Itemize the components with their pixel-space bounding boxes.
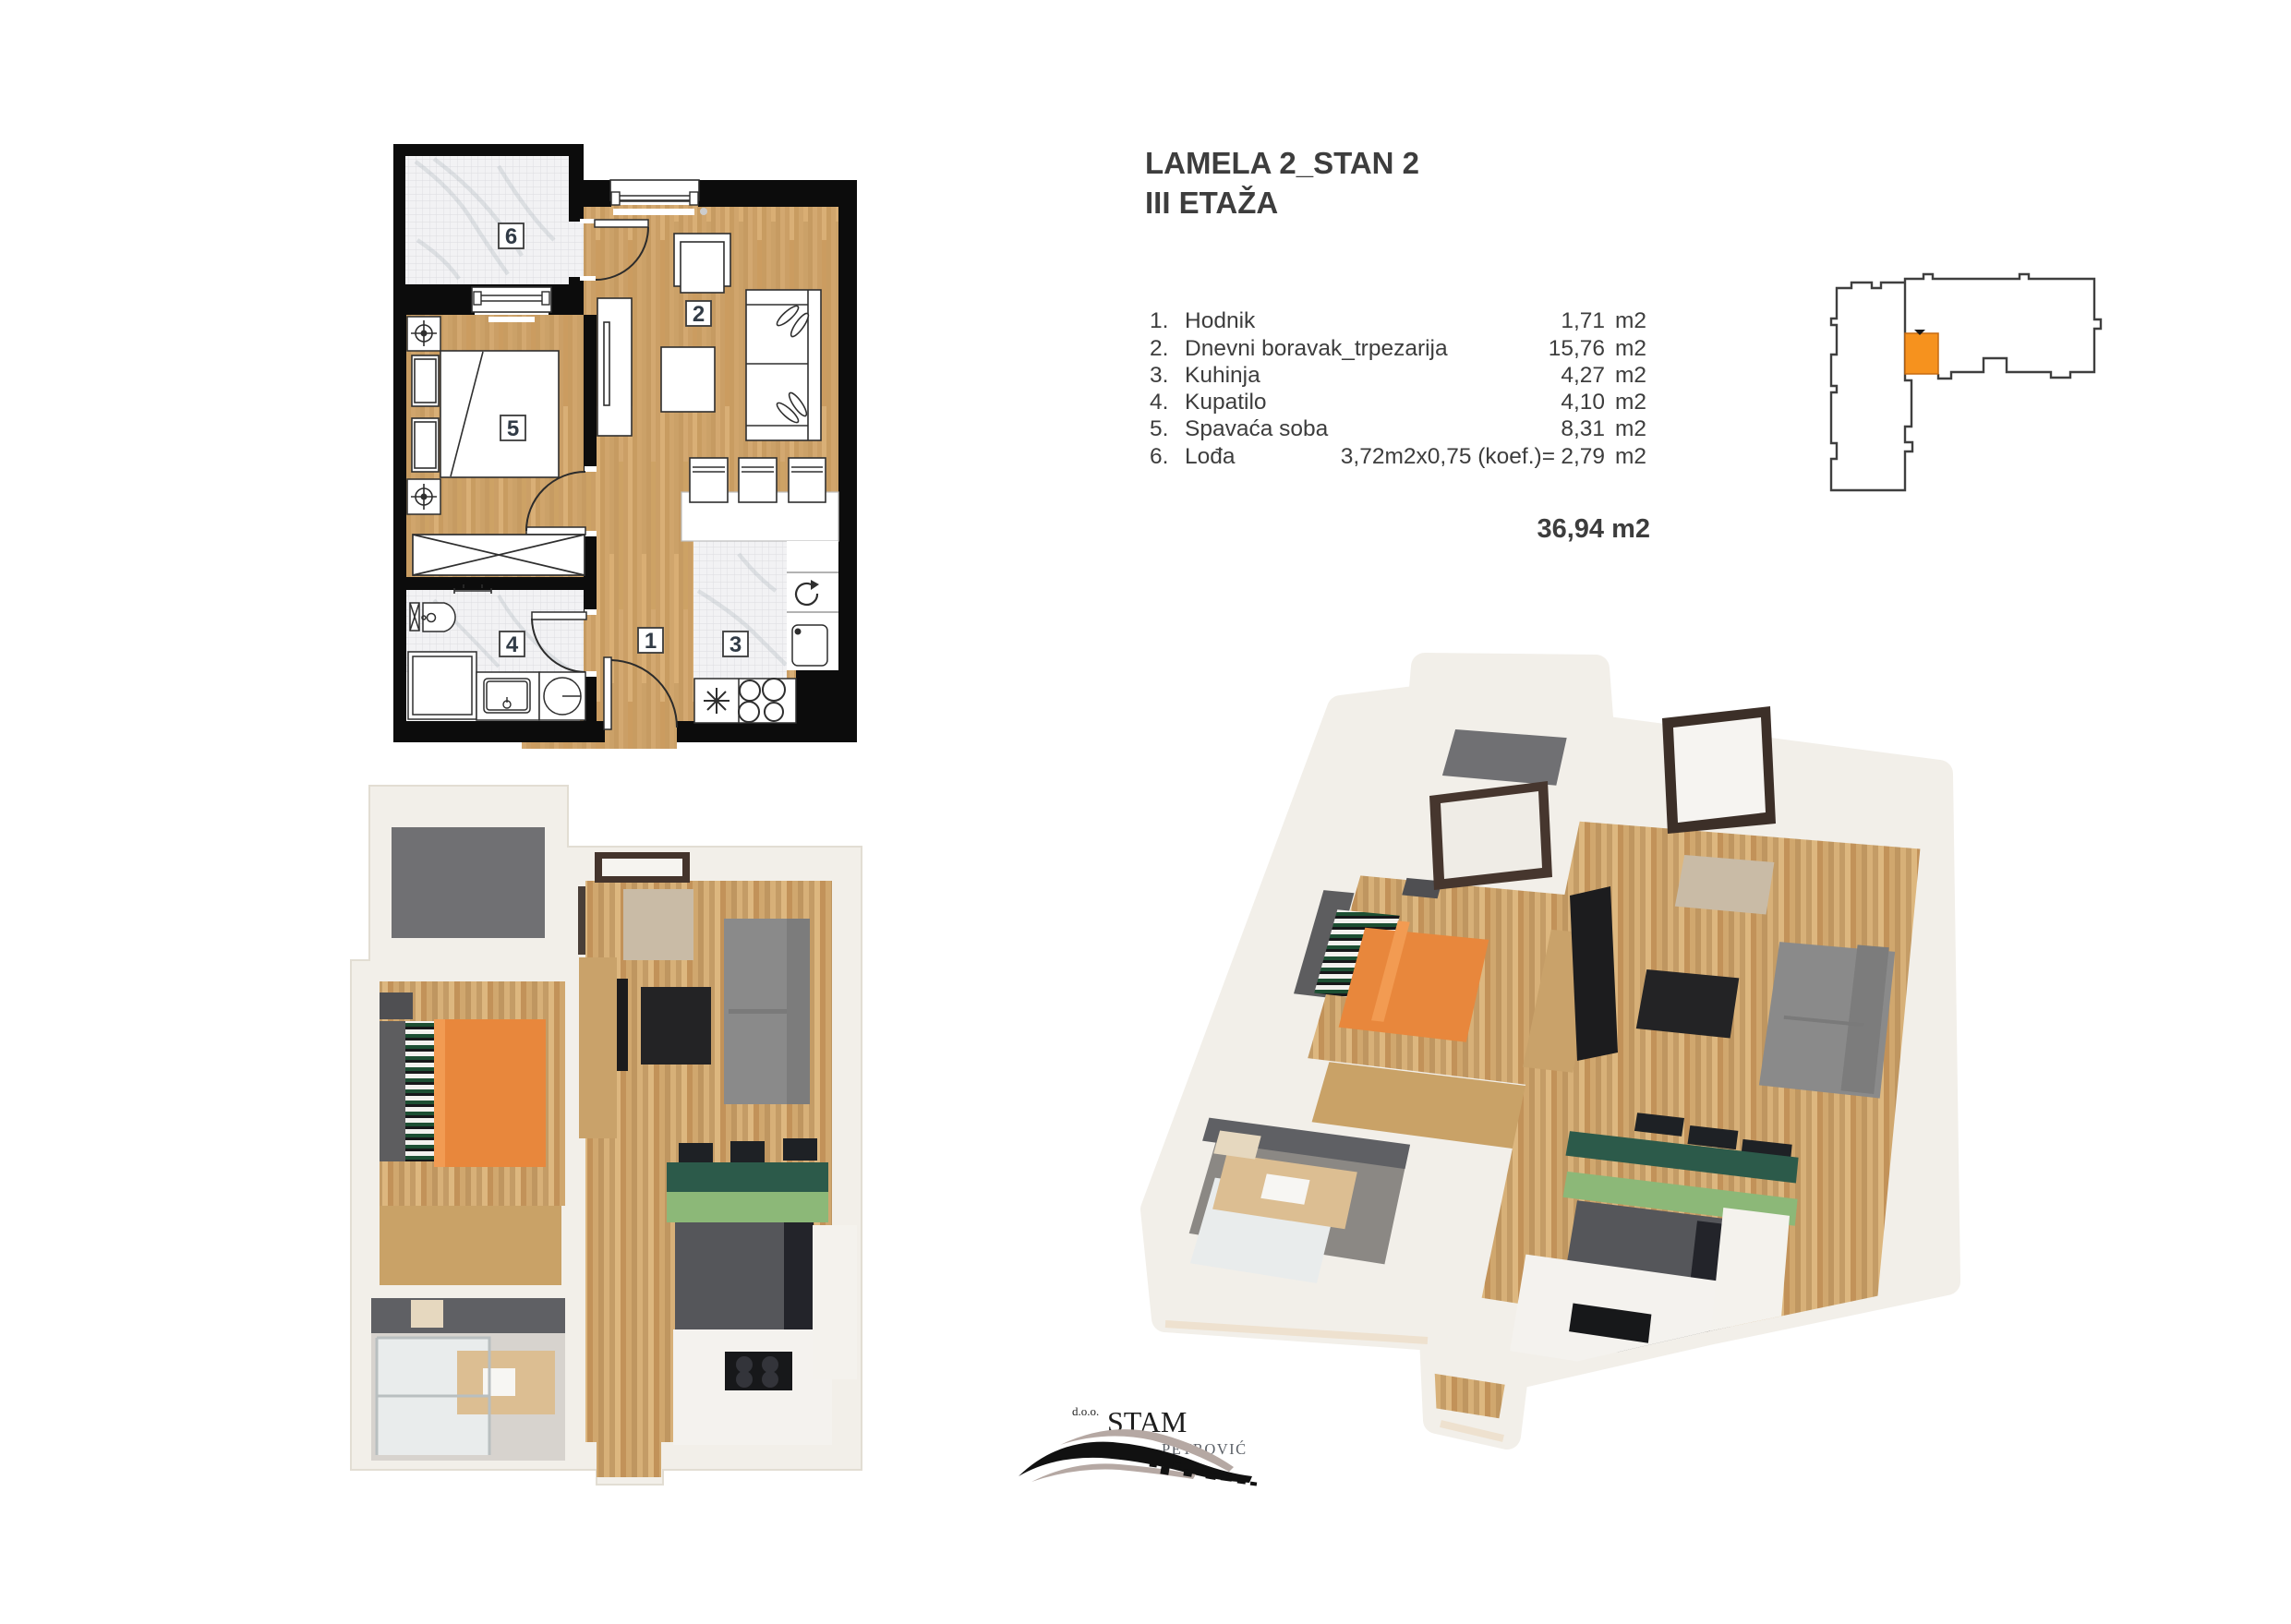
svg-text:d.o.o.: d.o.o. [1072, 1404, 1099, 1418]
svg-text:4: 4 [506, 632, 519, 657]
svg-text:5.: 5. [1150, 416, 1168, 441]
svg-text:2.: 2. [1150, 336, 1168, 361]
svg-text:Spavaća soba: Spavaća soba [1185, 416, 1329, 441]
svg-text:Lođa: Lođa [1185, 444, 1236, 469]
svg-text:4,27: 4,27 [1561, 363, 1605, 388]
svg-text:1.: 1. [1150, 308, 1168, 333]
svg-text:6.: 6. [1150, 444, 1168, 469]
svg-text:Dnevni boravak_trpezarija: Dnevni boravak_trpezarija [1185, 336, 1448, 361]
svg-text:Kupatilo: Kupatilo [1185, 390, 1267, 415]
svg-text:6: 6 [505, 224, 517, 249]
svg-text:4.: 4. [1150, 390, 1168, 415]
svg-text:1,71: 1,71 [1561, 308, 1605, 333]
svg-text:m2: m2 [1615, 390, 1646, 415]
svg-text:m2: m2 [1615, 416, 1646, 441]
svg-text:3: 3 [730, 632, 742, 657]
svg-text:1: 1 [645, 629, 657, 654]
svg-text:2,79: 2,79 [1561, 444, 1605, 469]
svg-text:III ETAŽA: III ETAŽA [1145, 186, 1278, 220]
svg-text:36,94 m2: 36,94 m2 [1537, 514, 1650, 544]
svg-text:Hodnik: Hodnik [1185, 308, 1256, 333]
svg-text:3.: 3. [1150, 363, 1168, 388]
svg-text:m2: m2 [1615, 363, 1646, 388]
svg-text:3,72m2x0,75 (koef.)=: 3,72m2x0,75 (koef.)= [1341, 444, 1555, 469]
svg-text:2: 2 [693, 302, 705, 327]
svg-text:15,76: 15,76 [1549, 336, 1605, 361]
svg-text:m2: m2 [1615, 336, 1646, 361]
svg-text:8,31: 8,31 [1561, 416, 1605, 441]
svg-text:m2: m2 [1615, 444, 1646, 469]
svg-text:LAMELA 2_STAN 2: LAMELA 2_STAN 2 [1145, 146, 1419, 180]
svg-text:4,10: 4,10 [1561, 390, 1605, 415]
svg-text:m2: m2 [1615, 308, 1646, 333]
svg-text:5: 5 [507, 416, 519, 441]
svg-text:Kuhinja: Kuhinja [1185, 363, 1260, 388]
